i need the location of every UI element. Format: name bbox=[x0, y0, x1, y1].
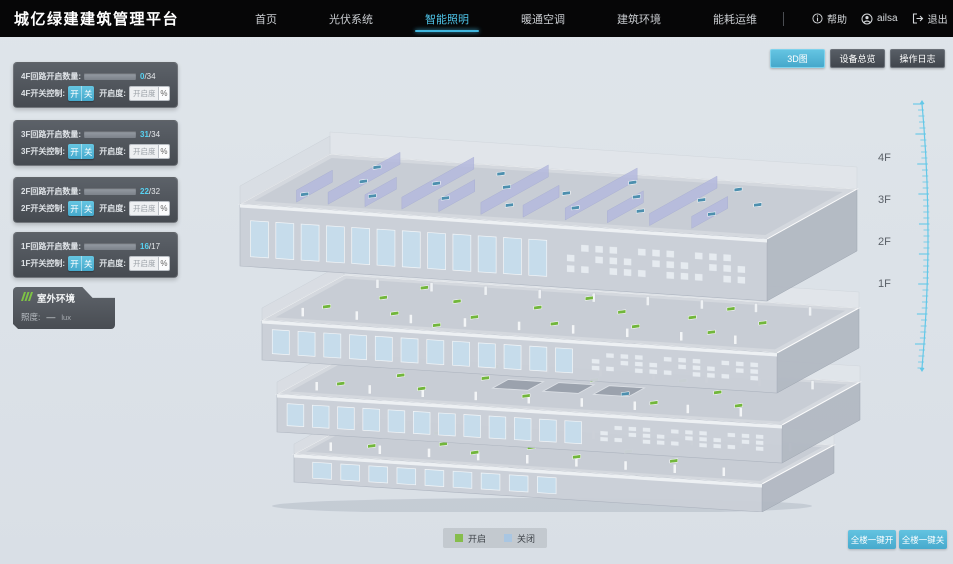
bulk-controls: 全楼一键开 全楼一键关 bbox=[848, 530, 947, 549]
floor-label-3f: 3F bbox=[878, 194, 891, 206]
circuit-count-label: 2F回路开启数量: bbox=[21, 186, 81, 197]
all-floors-off-button[interactable]: 全楼一键关 bbox=[899, 530, 947, 549]
user-icon bbox=[861, 13, 873, 25]
dim-label: 开启度: bbox=[99, 146, 126, 157]
dim-input[interactable] bbox=[129, 201, 159, 216]
circuit-count-value: 0/34 bbox=[140, 72, 156, 81]
logout-label: 退出 bbox=[928, 11, 948, 26]
help-label: 帮助 bbox=[827, 11, 847, 26]
nav-hvac[interactable]: 暖通空调 bbox=[517, 0, 569, 37]
switch-group: 开 关 bbox=[68, 256, 94, 271]
nav-energy-ops[interactable]: 能耗运维 bbox=[709, 0, 761, 37]
outdoor-env-title: 室外环境 bbox=[37, 291, 75, 305]
circuit-count-label: 3F回路开启数量: bbox=[21, 129, 81, 140]
switch-on-button[interactable]: 开 bbox=[68, 86, 81, 101]
percent-button[interactable]: % bbox=[159, 86, 170, 101]
nav-smart-lighting[interactable]: 智能照明 bbox=[421, 0, 473, 37]
circuit-count-label: 1F回路开启数量: bbox=[21, 241, 81, 252]
dim-label: 开启度: bbox=[99, 203, 126, 214]
smart-lighting-page: 城亿绿建建筑管理平台 首页 光伏系统 智能照明 暖通空调 建筑环境 能耗运维 帮… bbox=[0, 0, 953, 564]
nav-pv-system[interactable]: 光伏系统 bbox=[325, 0, 377, 37]
nav-home[interactable]: 首页 bbox=[251, 0, 281, 37]
user-name: ailsa bbox=[877, 13, 898, 24]
operation-log-button[interactable]: 操作日志 bbox=[890, 49, 945, 68]
legend-on-swatch bbox=[455, 534, 463, 542]
switch-control-label: 3F开关控制: bbox=[21, 146, 65, 157]
floor-label-2f: 2F bbox=[878, 236, 891, 248]
circuit-count-value: 31/34 bbox=[140, 130, 160, 139]
view-toolbar: 3D图 设备总览 操作日志 bbox=[770, 49, 945, 68]
switch-on-button[interactable]: 开 bbox=[68, 144, 81, 159]
switch-control-label: 4F开关控制: bbox=[21, 88, 65, 99]
circuit-count-value: 16/17 bbox=[140, 242, 160, 251]
outdoor-env-icon bbox=[21, 292, 33, 304]
floor-zoom-slider[interactable] bbox=[906, 94, 946, 379]
circuit-count-value: 22/32 bbox=[140, 187, 160, 196]
legend-off-swatch bbox=[504, 534, 512, 542]
building-3d-model[interactable] bbox=[222, 92, 862, 512]
light-status-legend: 开启 关闭 bbox=[443, 528, 547, 548]
logout-button[interactable]: 退出 bbox=[912, 11, 948, 26]
circuit-progress-bar bbox=[84, 243, 136, 250]
illuminance-value: — bbox=[46, 312, 55, 322]
switch-on-button[interactable]: 开 bbox=[68, 201, 81, 216]
circuit-progress-bar bbox=[84, 188, 136, 195]
circuit-progress-bar bbox=[84, 73, 136, 80]
all-floors-on-button[interactable]: 全楼一键开 bbox=[848, 530, 896, 549]
help-button[interactable]: 帮助 bbox=[812, 11, 847, 26]
view-3d-button[interactable]: 3D图 bbox=[770, 49, 825, 68]
floor-panel-2f: 2F回路开启数量: 22/32 2F开关控制: 开 关 开启度: % bbox=[13, 177, 178, 223]
user-menu[interactable]: ailsa bbox=[861, 13, 898, 25]
switch-group: 开 关 bbox=[68, 86, 94, 101]
dim-label: 开启度: bbox=[99, 258, 126, 269]
illuminance-unit: lux bbox=[61, 313, 71, 322]
switch-control-label: 1F开关控制: bbox=[21, 258, 65, 269]
legend-off: 关闭 bbox=[504, 532, 535, 545]
top-bar: 城亿绿建建筑管理平台 首页 光伏系统 智能照明 暖通空调 建筑环境 能耗运维 帮… bbox=[0, 0, 953, 37]
percent-button[interactable]: % bbox=[159, 256, 170, 271]
nav-building-env[interactable]: 建筑环境 bbox=[613, 0, 665, 37]
circuit-count-label: 4F回路开启数量: bbox=[21, 71, 81, 82]
outdoor-env-panel: 室外环境 照度: — lux bbox=[13, 287, 115, 329]
switch-off-button[interactable]: 关 bbox=[81, 256, 94, 271]
floor-label-1f: 1F bbox=[878, 278, 891, 290]
switch-group: 开 关 bbox=[68, 201, 94, 216]
header-right: 帮助 ailsa 退出 bbox=[783, 11, 953, 26]
device-overview-button[interactable]: 设备总览 bbox=[830, 49, 885, 68]
dim-input[interactable] bbox=[129, 256, 159, 271]
dim-input[interactable] bbox=[129, 144, 159, 159]
floor-panel-1f: 1F回路开启数量: 16/17 1F开关控制: 开 关 开启度: % bbox=[13, 232, 178, 278]
percent-button[interactable]: % bbox=[159, 144, 170, 159]
switch-off-button[interactable]: 关 bbox=[81, 86, 94, 101]
app-title: 城亿绿建建筑管理平台 bbox=[0, 8, 179, 29]
main-nav: 首页 光伏系统 智能照明 暖通空调 建筑环境 能耗运维 bbox=[229, 0, 783, 37]
circuit-progress-bar bbox=[84, 131, 136, 138]
switch-off-button[interactable]: 关 bbox=[81, 144, 94, 159]
switch-control-label: 2F开关控制: bbox=[21, 203, 65, 214]
switch-group: 开 关 bbox=[68, 144, 94, 159]
floor-panel-4f: 4F回路开启数量: 0/34 4F开关控制: 开 关 开启度: % bbox=[13, 62, 178, 108]
dim-label: 开启度: bbox=[99, 88, 126, 99]
floor-panel-3f: 3F回路开启数量: 31/34 3F开关控制: 开 关 开启度: % bbox=[13, 120, 178, 166]
info-icon bbox=[812, 13, 823, 24]
dim-input[interactable] bbox=[129, 86, 159, 101]
header-divider bbox=[783, 12, 784, 26]
switch-on-button[interactable]: 开 bbox=[68, 256, 81, 271]
logout-icon bbox=[912, 13, 924, 24]
switch-off-button[interactable]: 关 bbox=[81, 201, 94, 216]
floor-label-4f: 4F bbox=[878, 152, 891, 164]
legend-on-label: 开启 bbox=[468, 532, 486, 545]
legend-on: 开启 bbox=[455, 532, 486, 545]
legend-off-label: 关闭 bbox=[517, 532, 535, 545]
illuminance-label: 照度: bbox=[21, 311, 40, 323]
percent-button[interactable]: % bbox=[159, 201, 170, 216]
